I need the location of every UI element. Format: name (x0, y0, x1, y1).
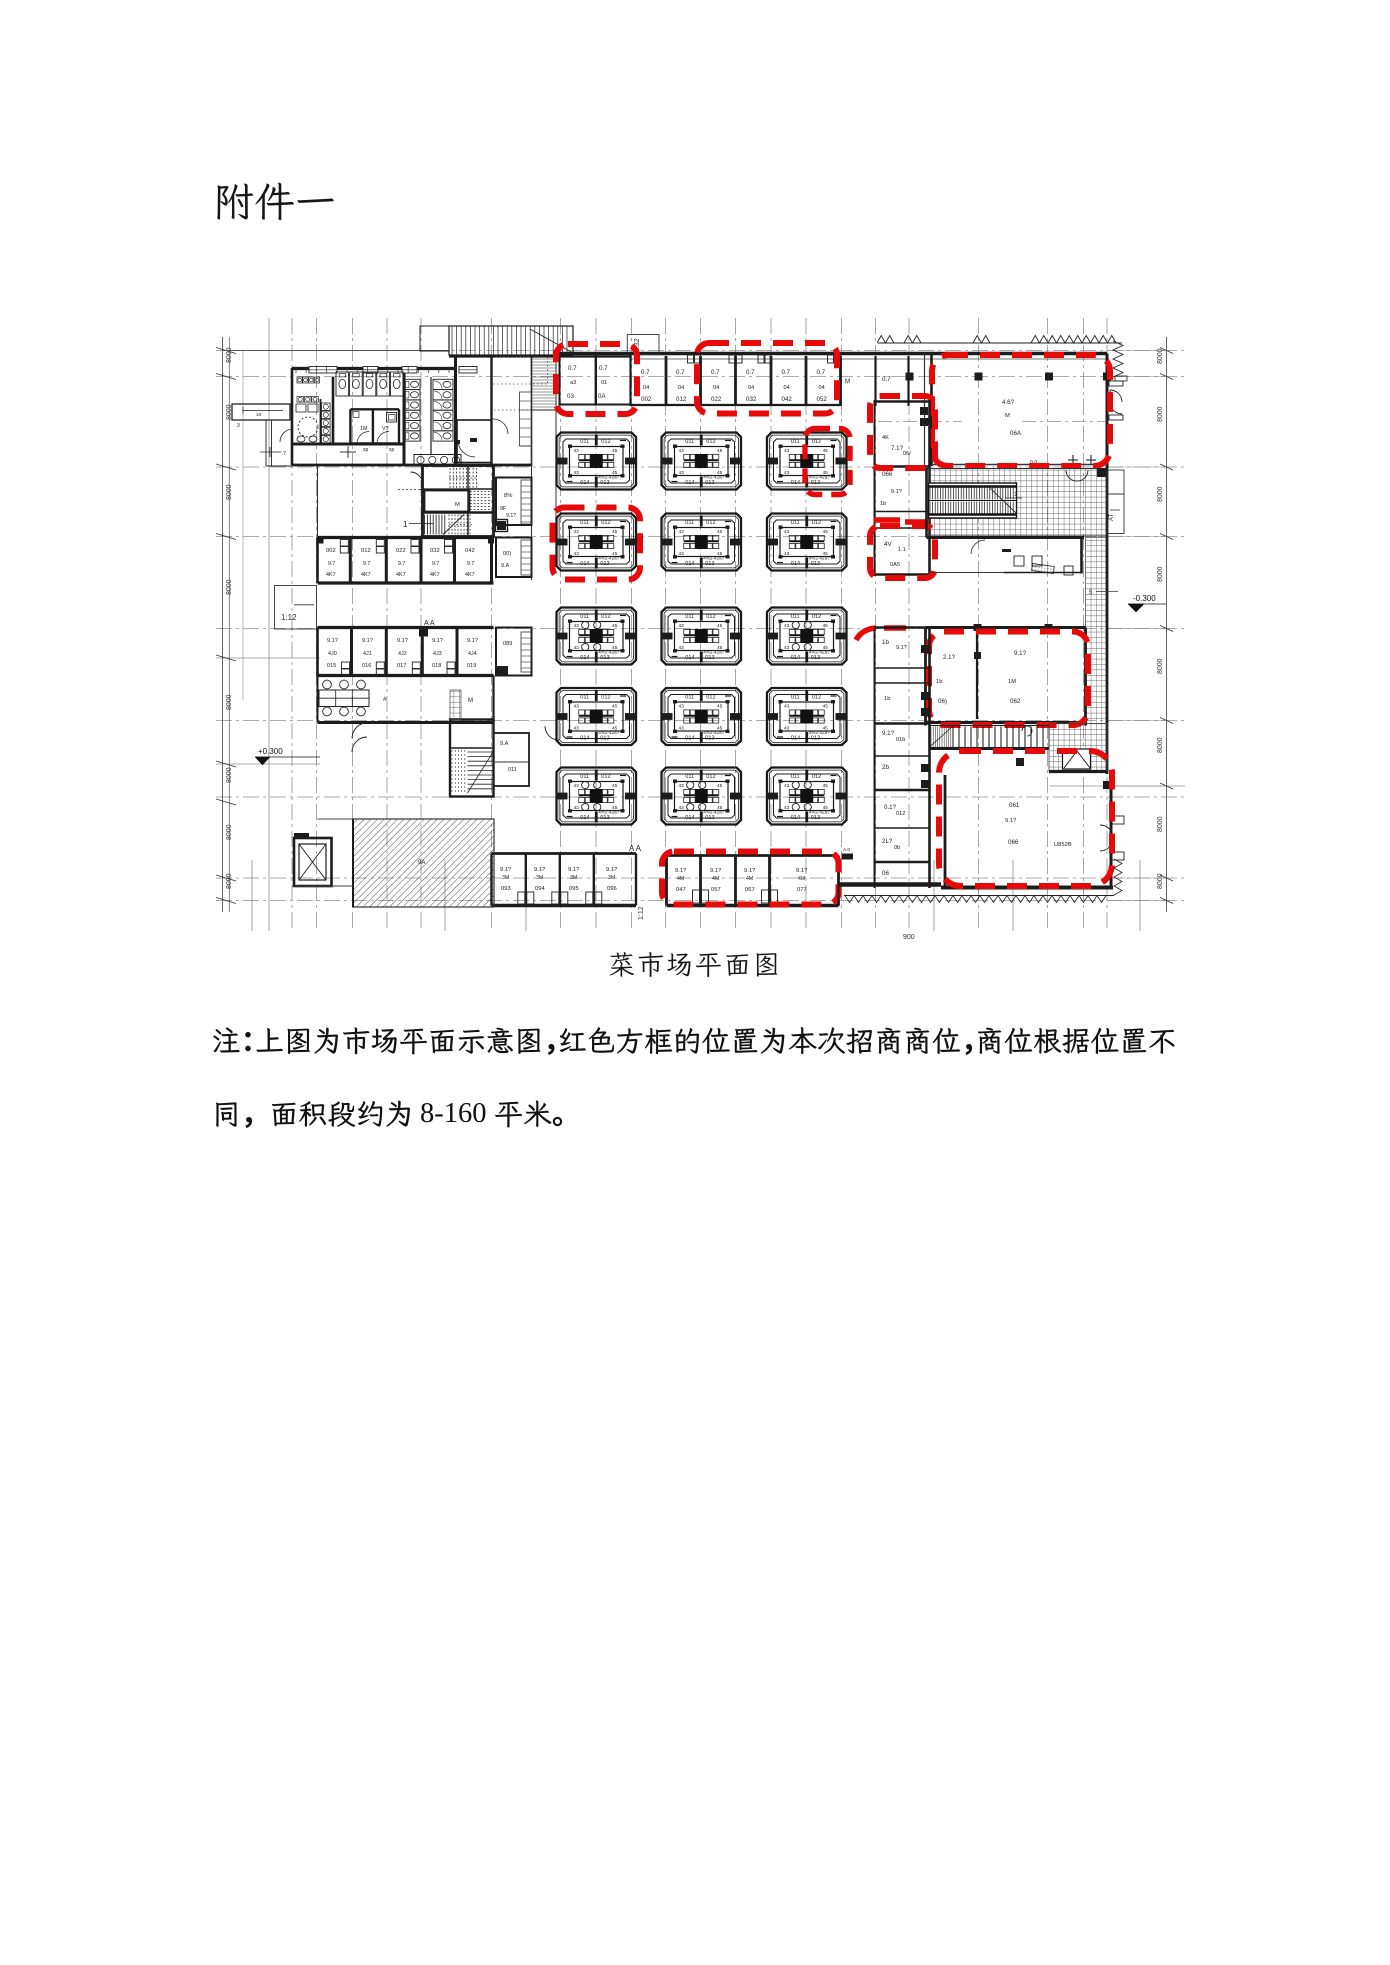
svg-text:011: 011 (580, 439, 589, 445)
svg-text:#: # (383, 696, 387, 703)
svg-text:43: 43 (679, 783, 685, 789)
svg-text:0.7: 0.7 (782, 369, 791, 376)
svg-text:45: 45 (823, 623, 829, 629)
svg-text:012: 012 (812, 520, 821, 526)
svg-text:013: 013 (600, 736, 609, 742)
svg-text:9.1?: 9.1? (796, 868, 808, 874)
svg-text:066: 066 (882, 471, 893, 478)
svg-text:V?: V? (382, 426, 389, 432)
svg-text:45: 45 (823, 805, 829, 811)
svg-text:4J3: 4J3 (433, 651, 442, 657)
svg-text:014: 014 (685, 736, 694, 742)
svg-text:013: 013 (600, 815, 609, 821)
svg-text:43: 43 (574, 704, 580, 710)
svg-text:8000: 8000 (226, 767, 233, 783)
svg-text:8000: 8000 (1157, 486, 1164, 502)
svg-text:8000: 8000 (226, 347, 233, 363)
svg-text:013: 013 (705, 736, 714, 742)
svg-text:45: 45 (823, 551, 829, 557)
svg-text:014: 014 (580, 655, 589, 661)
svg-text:4J4: 4J4 (468, 651, 477, 657)
svg-text:43: 43 (574, 726, 580, 732)
svg-text:066: 066 (1008, 839, 1019, 846)
svg-text:012: 012 (601, 520, 610, 526)
svg-text:8000: 8000 (1157, 816, 1164, 832)
svg-text:9.7: 9.7 (467, 561, 474, 567)
svg-text:1b: 1b (880, 501, 886, 507)
svg-text:45: 45 (717, 704, 723, 710)
svg-text:9.1?: 9.1? (882, 730, 895, 737)
svg-text:011: 011 (508, 767, 517, 773)
svg-text:10: 10 (256, 412, 262, 418)
svg-text:43: 43 (679, 805, 685, 811)
svg-text:4K7: 4K7 (361, 572, 371, 578)
svg-text:011: 011 (791, 520, 800, 526)
svg-text:052: 052 (817, 396, 828, 403)
svg-text:0A: 0A (598, 393, 606, 400)
svg-text:013: 013 (705, 655, 714, 661)
svg-text:43: 43 (574, 783, 580, 789)
svg-text:1b: 1b (884, 696, 890, 702)
svg-text:45: 45 (612, 726, 618, 732)
svg-text:012: 012 (601, 774, 610, 780)
svg-text:a3: a3 (570, 380, 576, 386)
svg-text:093: 093 (501, 886, 511, 892)
svg-text:43: 43 (574, 529, 580, 535)
svg-text:45: 45 (717, 726, 723, 732)
svg-text:45: 45 (717, 551, 723, 557)
svg-text:2b: 2b (882, 764, 889, 771)
svg-text:8000: 8000 (1157, 406, 1164, 422)
svg-text:013: 013 (811, 480, 820, 486)
svg-text:047: 047 (676, 887, 686, 893)
svg-text:011: 011 (685, 695, 694, 701)
svg-text:4J2: 4J2 (398, 651, 407, 657)
svg-text:01b: 01b (896, 737, 905, 743)
svg-text:012: 012 (706, 695, 715, 701)
svg-text:8-160: 8-160 (420, 1098, 487, 1129)
svg-text:013: 013 (600, 655, 609, 661)
svg-text:8000: 8000 (226, 824, 233, 840)
svg-text:9.1?: 9.1? (1014, 650, 1027, 657)
svg-text:45: 45 (717, 623, 723, 629)
svg-text:43: 43 (679, 448, 685, 454)
svg-text:9.7: 9.7 (328, 561, 335, 567)
svg-text:014: 014 (685, 480, 694, 486)
svg-text:061: 061 (1009, 802, 1020, 809)
svg-text:012: 012 (706, 520, 715, 526)
svg-text:8000: 8000 (226, 484, 233, 500)
svg-text:8000: 8000 (226, 694, 233, 710)
svg-text:4M: 4M (677, 876, 684, 882)
svg-text:45: 45 (717, 783, 723, 789)
svg-text:45: 45 (612, 448, 618, 454)
svg-text:014: 014 (791, 480, 800, 486)
svg-text:9.1?: 9.1? (1005, 818, 1017, 824)
svg-text:042: 042 (465, 548, 475, 554)
svg-text:077: 077 (797, 887, 807, 893)
svg-text:0b: 0b (894, 845, 900, 851)
svg-text:012: 012 (601, 614, 610, 620)
svg-text:012: 012 (706, 439, 715, 445)
svg-text:013: 013 (705, 480, 714, 486)
svg-text:011: 011 (580, 774, 589, 780)
svg-text:032: 032 (430, 548, 440, 554)
svg-text:8000: 8000 (226, 873, 233, 889)
svg-text:8000: 8000 (226, 579, 233, 595)
svg-text:9.1?: 9.1? (432, 638, 443, 644)
svg-text:011: 011 (791, 774, 800, 780)
svg-text:45: 45 (823, 726, 829, 732)
svg-text:057: 057 (711, 887, 721, 893)
svg-text:0A5: 0A5 (890, 562, 900, 568)
svg-text:012: 012 (812, 695, 821, 701)
svg-text:011: 011 (685, 439, 694, 445)
svg-text:9.1?: 9.1? (606, 867, 618, 873)
svg-text:3M: 3M (536, 875, 543, 881)
svg-text:9.1?: 9.1? (397, 638, 408, 644)
svg-text:04: 04 (784, 385, 790, 391)
svg-text:04: 04 (713, 385, 719, 391)
svg-text:9.1?: 9.1? (362, 638, 373, 644)
svg-text:094: 094 (535, 886, 545, 892)
svg-text:45: 45 (612, 529, 618, 535)
svg-text:014: 014 (580, 561, 589, 567)
svg-text:45: 45 (612, 551, 618, 557)
svg-text:43: 43 (784, 529, 790, 535)
svg-text:04: 04 (819, 385, 825, 391)
svg-text:9.7: 9.7 (363, 561, 370, 567)
svg-text:43: 43 (574, 623, 580, 629)
svg-text:8000: 8000 (1157, 348, 1164, 364)
svg-text:012: 012 (706, 614, 715, 620)
svg-text:2.1?: 2.1? (943, 654, 956, 661)
svg-text:04: 04 (643, 385, 649, 391)
svg-text:1:12: 1:12 (281, 613, 297, 622)
svg-text:3M: 3M (570, 875, 577, 881)
svg-text:4J1: 4J1 (363, 651, 372, 657)
svg-text:43: 43 (784, 805, 790, 811)
svg-text:012: 012 (361, 548, 371, 554)
svg-text:8000: 8000 (1157, 658, 1164, 674)
svg-text:7.1?: 7.1? (891, 445, 904, 452)
svg-text:016: 016 (362, 663, 371, 669)
svg-text:012: 012 (601, 439, 610, 445)
svg-text:042: 042 (782, 396, 793, 403)
svg-text:A A: A A (629, 844, 642, 853)
svg-text:022: 022 (396, 548, 406, 554)
svg-text:43: 43 (679, 623, 685, 629)
svg-text:014: 014 (580, 736, 589, 742)
svg-text:014: 014 (580, 480, 589, 486)
svg-text:43: 43 (784, 783, 790, 789)
svg-text:04: 04 (748, 385, 754, 391)
svg-text:45: 45 (612, 645, 618, 651)
svg-text:900: 900 (903, 934, 915, 941)
svg-text:43: 43 (784, 551, 790, 557)
svg-text:4V: 4V (884, 541, 892, 548)
svg-text:45: 45 (717, 805, 723, 811)
svg-text:014: 014 (791, 736, 800, 742)
svg-text:002: 002 (326, 548, 336, 554)
svg-text:1M: 1M (360, 426, 368, 432)
svg-text:9.1?: 9.1? (534, 867, 546, 873)
svg-text:45: 45 (823, 783, 829, 789)
svg-text:4K: 4K (882, 435, 889, 441)
svg-text:45: 45 (717, 645, 723, 651)
svg-text:45: 45 (612, 704, 618, 710)
svg-text:9A: 9A (418, 860, 425, 866)
svg-text:013: 013 (705, 561, 714, 567)
svg-text:1b: 1b (882, 639, 889, 646)
svg-text:43: 43 (574, 805, 580, 811)
svg-text:4K7: 4K7 (396, 572, 406, 578)
svg-text:9.1?: 9.1? (327, 638, 338, 644)
svg-text:2L?: 2L? (882, 838, 893, 845)
svg-text:011: 011 (791, 614, 800, 620)
svg-text:45: 45 (612, 470, 618, 476)
svg-text:018: 018 (432, 663, 441, 669)
svg-text:096: 096 (607, 886, 617, 892)
svg-text:013: 013 (811, 561, 820, 567)
svg-text:43: 43 (784, 645, 790, 651)
svg-text:014: 014 (685, 561, 694, 567)
svg-text:M: M (1005, 413, 1010, 419)
svg-text:011: 011 (580, 520, 589, 526)
svg-text:4K7: 4K7 (326, 572, 336, 578)
svg-text:06/: 06/ (903, 451, 911, 457)
svg-text:011: 011 (791, 695, 800, 701)
svg-text:011: 011 (685, 774, 694, 780)
svg-text:012: 012 (706, 774, 715, 780)
svg-text:43: 43 (574, 470, 580, 476)
svg-text:45: 45 (823, 470, 829, 476)
svg-text:43: 43 (574, 448, 580, 454)
svg-text:9.1?: 9.1? (744, 868, 756, 874)
svg-text:+0.300: +0.300 (258, 747, 283, 756)
svg-text:0.7: 0.7 (817, 369, 826, 376)
svg-text:A.0: A.0 (843, 847, 850, 852)
svg-text:1b: 1b (936, 679, 942, 685)
svg-text:011: 011 (685, 520, 694, 526)
svg-text:03: 03 (567, 393, 574, 400)
svg-text:0.7: 0.7 (676, 369, 685, 376)
svg-text:A A: A A (424, 620, 435, 627)
svg-text:0.7: 0.7 (568, 365, 577, 372)
svg-text:4.6?: 4.6? (1002, 399, 1015, 406)
svg-text:9.1?: 9.1? (675, 868, 687, 874)
svg-text:0.7: 0.7 (882, 376, 891, 383)
svg-text:45: 45 (717, 529, 723, 535)
svg-text:013: 013 (811, 736, 820, 742)
svg-text:45: 45 (823, 448, 829, 454)
svg-text:43: 43 (574, 645, 580, 651)
svg-text:014: 014 (791, 655, 800, 661)
svg-text:0.7: 0.7 (711, 369, 720, 376)
svg-text:014: 014 (791, 815, 800, 821)
svg-text:43: 43 (784, 470, 790, 476)
svg-text:9.7: 9.7 (432, 561, 439, 567)
svg-text:8000: 8000 (1157, 737, 1164, 753)
svg-text:AT: AT (1109, 513, 1115, 521)
svg-text:013: 013 (811, 655, 820, 661)
svg-text:4K7: 4K7 (430, 572, 440, 578)
svg-text:0.1?: 0.1? (884, 804, 897, 811)
svg-text:032: 032 (746, 396, 757, 403)
svg-text:0.7: 0.7 (746, 369, 755, 376)
svg-text:45: 45 (612, 623, 618, 629)
svg-text:013: 013 (600, 480, 609, 486)
svg-text:43: 43 (574, 551, 580, 557)
svg-text:9.1?: 9.1? (506, 513, 516, 519)
svg-text:1M: 1M (1008, 679, 1016, 685)
svg-text:012: 012 (896, 811, 905, 817)
svg-text:095: 095 (569, 886, 579, 892)
svg-text:45: 45 (717, 448, 723, 454)
svg-text:015: 015 (327, 663, 336, 669)
svg-text:012: 012 (676, 396, 687, 403)
svg-text:019: 019 (467, 663, 476, 669)
svg-text:1: 1 (403, 520, 408, 529)
svg-text:43: 43 (784, 448, 790, 454)
svg-text:01: 01 (601, 380, 607, 386)
svg-text:sp: sp (389, 447, 395, 453)
svg-text:43: 43 (679, 529, 685, 535)
svg-text:011: 011 (580, 614, 589, 620)
svg-text:022: 022 (711, 396, 722, 403)
svg-text:011: 011 (580, 695, 589, 701)
svg-text:06: 06 (882, 870, 889, 877)
svg-text:9.1?: 9.1? (896, 645, 907, 651)
svg-text:014: 014 (580, 815, 589, 821)
svg-text:9.A: 9.A (500, 741, 509, 747)
svg-text:4K7: 4K7 (465, 572, 475, 578)
svg-text:012: 012 (601, 695, 610, 701)
svg-text:45: 45 (823, 704, 829, 710)
svg-text:43: 43 (679, 551, 685, 557)
svg-text:9.1?: 9.1? (710, 868, 722, 874)
svg-text:43: 43 (784, 726, 790, 732)
svg-text:45: 45 (823, 645, 829, 651)
svg-text:067: 067 (745, 887, 755, 893)
svg-text:4J0: 4J0 (328, 651, 337, 657)
svg-text:8000: 8000 (1157, 566, 1164, 582)
svg-text:U852B: U852B (1054, 842, 1072, 848)
svg-text:43: 43 (784, 623, 790, 629)
svg-text:0.7: 0.7 (641, 369, 650, 376)
svg-text:45: 45 (612, 783, 618, 789)
svg-text:9.1?: 9.1? (568, 867, 580, 873)
svg-text:012: 012 (812, 439, 821, 445)
svg-text:4M: 4M (712, 876, 719, 882)
svg-text:011: 011 (791, 439, 800, 445)
svg-text:013: 013 (705, 815, 714, 821)
svg-text:012: 012 (812, 614, 821, 620)
svg-text:43: 43 (784, 704, 790, 710)
svg-text:43: 43 (679, 470, 685, 476)
svg-text:8000: 8000 (1157, 873, 1164, 889)
svg-text:9.A: 9.A (501, 563, 509, 569)
svg-text:011: 011 (685, 614, 694, 620)
svg-text:1.1: 1.1 (898, 547, 906, 553)
svg-text:3: 3 (237, 423, 240, 429)
svg-text:06A: 06A (1010, 430, 1022, 437)
svg-text:06): 06) (938, 698, 947, 705)
svg-text:014: 014 (685, 655, 694, 661)
svg-text:M: M (845, 378, 850, 385)
svg-text:8%: 8% (504, 493, 512, 499)
svg-text:089: 089 (503, 641, 512, 647)
svg-text:-0.300: -0.300 (1133, 594, 1156, 603)
svg-text:3M: 3M (502, 875, 509, 881)
svg-text:4M: 4M (746, 876, 753, 882)
svg-text:3M: 3M (608, 875, 615, 881)
svg-text:9.1?: 9.1? (467, 638, 478, 644)
svg-text:45: 45 (717, 470, 723, 476)
svg-text:43: 43 (679, 645, 685, 651)
svg-text:1:12: 1:12 (638, 906, 645, 920)
svg-text:43: 43 (679, 704, 685, 710)
svg-text:014: 014 (791, 561, 800, 567)
svg-text:04: 04 (678, 385, 684, 391)
svg-text:014: 014 (685, 815, 694, 821)
svg-text:013: 013 (600, 561, 609, 567)
svg-text:0.7: 0.7 (599, 365, 608, 372)
svg-text:7: 7 (283, 451, 286, 457)
svg-text:M: M (468, 698, 473, 704)
svg-text:4M: 4M (798, 876, 805, 882)
svg-text:9F: 9F (500, 506, 507, 512)
svg-text:sp: sp (363, 447, 369, 453)
svg-text:M: M (455, 502, 460, 508)
svg-text:45: 45 (823, 529, 829, 535)
svg-text:43: 43 (679, 726, 685, 732)
svg-text:9.7: 9.7 (398, 561, 405, 567)
svg-text:012: 012 (812, 774, 821, 780)
svg-text:013: 013 (811, 815, 820, 821)
svg-text:002: 002 (641, 396, 652, 403)
svg-text:00): 00) (503, 551, 511, 557)
svg-text:9.1?: 9.1? (891, 489, 902, 495)
svg-text:45: 45 (612, 805, 618, 811)
svg-text:9.1?: 9.1? (500, 867, 512, 873)
svg-text:062: 062 (1010, 698, 1021, 705)
svg-text:017: 017 (397, 663, 406, 669)
